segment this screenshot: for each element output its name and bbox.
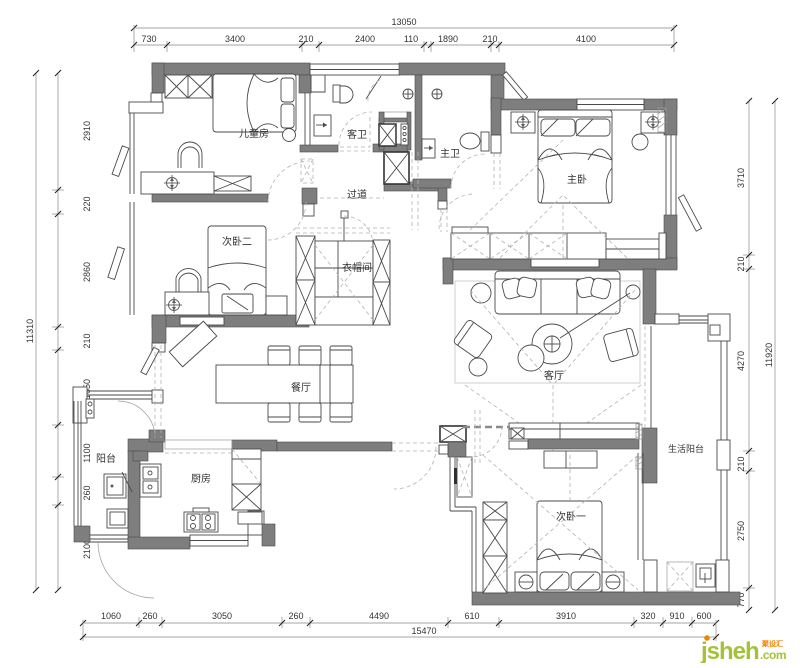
- svg-text:阳台: 阳台: [96, 452, 116, 465]
- svg-text:220: 220: [82, 196, 92, 211]
- svg-text:260: 260: [82, 485, 92, 500]
- svg-text:15470: 15470: [411, 626, 436, 636]
- svg-text:2910: 2910: [82, 121, 92, 141]
- svg-text:3400: 3400: [225, 34, 245, 44]
- svg-text:jsheh: jsheh: [700, 638, 759, 663]
- svg-text:730: 730: [141, 34, 156, 44]
- svg-text:210: 210: [736, 256, 746, 271]
- svg-text:320: 320: [640, 611, 655, 621]
- svg-text:儿童房: 儿童房: [239, 127, 269, 140]
- svg-text:生活阳台: 生活阳台: [668, 443, 704, 454]
- svg-text:110: 110: [404, 34, 418, 44]
- svg-text:210: 210: [736, 456, 746, 471]
- svg-text:260: 260: [142, 611, 157, 621]
- svg-text:3710: 3710: [736, 168, 746, 188]
- svg-text:次卧一: 次卧一: [556, 510, 586, 523]
- svg-text:2860: 2860: [82, 262, 92, 282]
- svg-text:210: 210: [298, 34, 313, 44]
- svg-text:210: 210: [482, 34, 497, 44]
- svg-text:210: 210: [82, 333, 92, 348]
- svg-text:610: 610: [464, 611, 479, 621]
- svg-text:客厅: 客厅: [544, 369, 564, 382]
- svg-text:主卫: 主卫: [440, 148, 460, 160]
- svg-text:3050: 3050: [212, 611, 232, 621]
- svg-text:4490: 4490: [369, 611, 389, 621]
- svg-text:13050: 13050: [391, 17, 416, 27]
- svg-text:3910: 3910: [556, 611, 576, 621]
- svg-text:4270: 4270: [736, 351, 746, 371]
- svg-text:.com: .com: [760, 648, 786, 662]
- svg-text:4100: 4100: [576, 34, 596, 44]
- svg-text:过道: 过道: [347, 188, 367, 201]
- svg-text:910: 910: [669, 611, 684, 621]
- svg-text:次卧二: 次卧二: [222, 235, 252, 248]
- svg-text:餐厅: 餐厅: [291, 381, 311, 394]
- svg-text:11310: 11310: [25, 319, 35, 343]
- svg-text:2400: 2400: [355, 34, 375, 44]
- svg-text:11920: 11920: [764, 343, 774, 367]
- svg-text:260: 260: [288, 611, 303, 621]
- svg-text:1060: 1060: [101, 611, 121, 621]
- svg-text:厨房: 厨房: [191, 472, 211, 485]
- svg-text:1100: 1100: [82, 443, 92, 462]
- svg-text:1890: 1890: [438, 34, 458, 44]
- svg-text:聚设汇: 聚设汇: [761, 639, 783, 648]
- svg-text:2750: 2750: [736, 521, 746, 541]
- svg-text:衣帽间: 衣帽间: [342, 261, 372, 274]
- svg-text:客卫: 客卫: [347, 128, 367, 141]
- svg-text:600: 600: [696, 611, 711, 621]
- svg-text:主卧: 主卧: [567, 173, 587, 186]
